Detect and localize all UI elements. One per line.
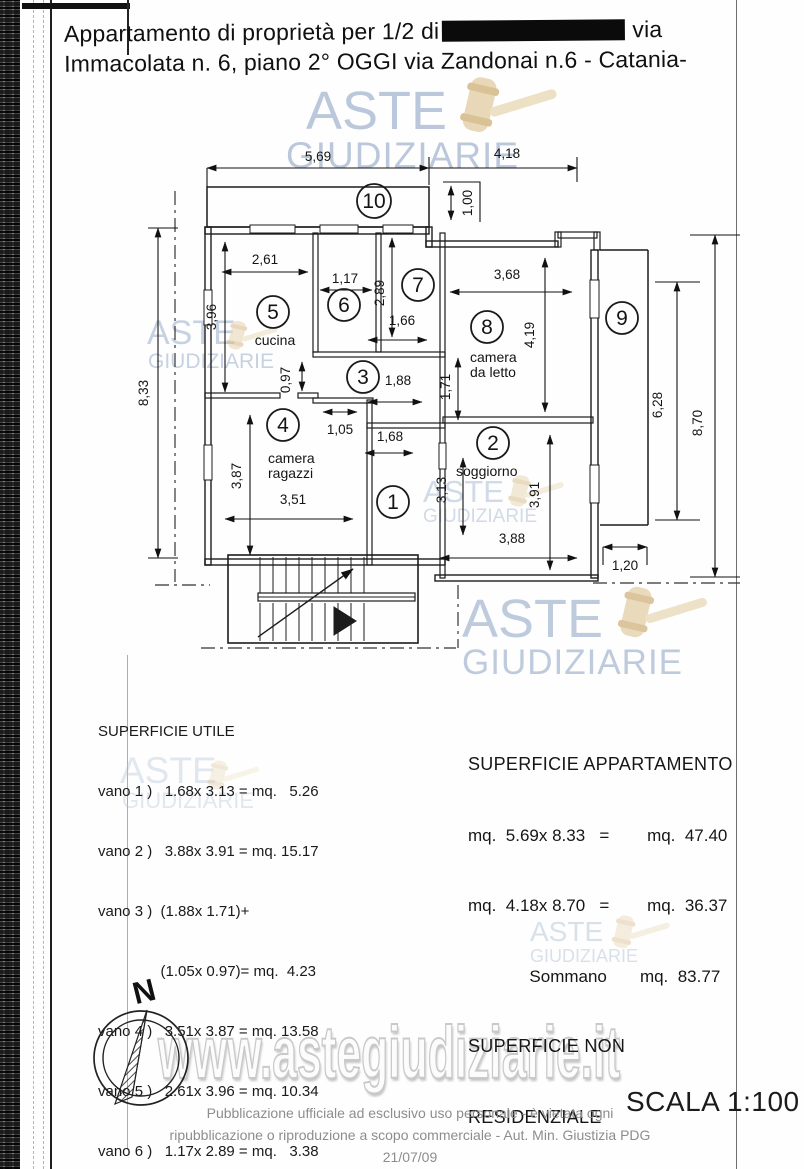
title-line2: Immacolata n. 6, piano 2° OGGI via Zando…	[64, 46, 687, 77]
scan-fold-dotted-line	[33, 0, 34, 1169]
scan-top-bar	[22, 3, 130, 9]
room-number-5: 5	[267, 301, 279, 324]
property-boundary-lines	[155, 191, 740, 648]
dim-label: 8,33	[136, 380, 151, 406]
dim-label: 1,00	[460, 190, 475, 216]
dim-label: 3,91	[527, 482, 542, 508]
table-title: SUPERFICIE UTILE	[98, 722, 338, 742]
room-label-camera-ragazzi-2: ragazzi	[268, 465, 313, 481]
room-number-4: 4	[277, 414, 289, 437]
footer-disclaimer: Pubblicazione ufficiale ad esclusivo uso…	[150, 1102, 670, 1168]
room-label-cucina: cucina	[255, 332, 296, 348]
room-number-9: 9	[616, 307, 628, 330]
scan-noise-edge	[0, 0, 20, 1169]
table-row-sommano: Sommano mq. 83.77	[468, 965, 733, 989]
dimension-lines	[148, 157, 740, 577]
dim-label: 1,05	[327, 422, 353, 437]
page-title: Appartamento di proprietà per 1/2 divia …	[64, 13, 752, 78]
title-text-after-redaction: via	[632, 16, 662, 42]
dim-label: 2,89	[372, 280, 387, 306]
dimension-labels: 5,69 4,18 1,00 8,33 2,61 3,96 1,17 2,89 …	[136, 146, 705, 573]
dim-label: 5,69	[305, 149, 331, 164]
dim-label: 3,96	[204, 304, 219, 330]
dim-label: 0,97	[278, 367, 293, 393]
scan-page-edge-line	[50, 0, 52, 1169]
dim-label: 1,71	[438, 374, 453, 400]
table-row: vano 1 ) 1.68x 3.13 = mq. 5.26	[98, 782, 338, 802]
dim-label: 1,66	[389, 313, 415, 328]
dim-label: 1,68	[377, 429, 403, 444]
staircase	[228, 555, 418, 643]
redaction-bar	[442, 19, 625, 41]
dim-label: 3,87	[229, 463, 244, 489]
dim-label: 3,88	[499, 531, 525, 546]
footer-line2: ripubblicazione o riproduzione a scopo c…	[150, 1124, 670, 1168]
room-number-1: 1	[387, 491, 399, 514]
dim-label: 1,88	[385, 373, 411, 388]
room-label-camera-letto-2: da letto	[470, 364, 516, 380]
gavel-icon	[432, 72, 562, 148]
dim-label: 3,13	[434, 477, 449, 503]
dim-label: 2,61	[252, 252, 278, 267]
scan-fold-dotted-line	[43, 0, 44, 1169]
dim-label: 3,68	[494, 267, 520, 282]
room-label-soggiorno: soggiorno	[456, 463, 518, 479]
footer-line1: Pubblicazione ufficiale ad esclusivo uso…	[150, 1102, 670, 1124]
dim-label: 4,19	[522, 322, 537, 348]
table-title: SUPERFICIE APPARTAMENTO	[468, 753, 733, 777]
dim-label: 1,17	[332, 271, 358, 286]
room-number-2: 2	[487, 432, 499, 455]
table-subtitle: SUPERFICIE NON	[468, 1035, 733, 1059]
room-number-10: 10	[362, 190, 385, 213]
scanned-document-page: Appartamento di proprietà per 1/2 divia …	[0, 0, 804, 1169]
dim-label: 1,20	[612, 558, 638, 573]
room-label-camera-letto-1: camera	[470, 349, 517, 365]
table-row: vano 3 ) (1.88x 1.71)+	[98, 902, 338, 922]
dim-label: 8,70	[690, 410, 705, 436]
floorplan-drawing: 5,69 4,18 1,00 8,33 2,61 3,96 1,17 2,89 …	[138, 145, 758, 690]
dim-label: 6,28	[650, 392, 665, 418]
room-number-7: 7	[412, 274, 424, 297]
watermark-aste: ASTE	[306, 84, 447, 138]
room-number-8: 8	[481, 316, 493, 339]
title-text-before-redaction: Appartamento di proprietà per 1/2 di	[64, 18, 440, 47]
room-names: cucina camera da letto camera ragazzi so…	[255, 332, 518, 481]
dim-label: 4,18	[494, 146, 520, 161]
room-label-camera-ragazzi-1: camera	[268, 450, 315, 466]
table-row: mq. 4.18x 8.70 = mq. 36.37	[468, 894, 733, 918]
compass-icon	[85, 1002, 197, 1114]
room-number-6: 6	[338, 294, 350, 317]
room-number-3: 3	[357, 366, 369, 389]
dim-label: 3,51	[280, 492, 306, 507]
walls	[204, 187, 648, 581]
table-row: vano 2 ) 3.88x 3.91 = mq. 15.17	[98, 842, 338, 862]
table-row: mq. 5.69x 8.33 = mq. 47.40	[468, 824, 733, 848]
